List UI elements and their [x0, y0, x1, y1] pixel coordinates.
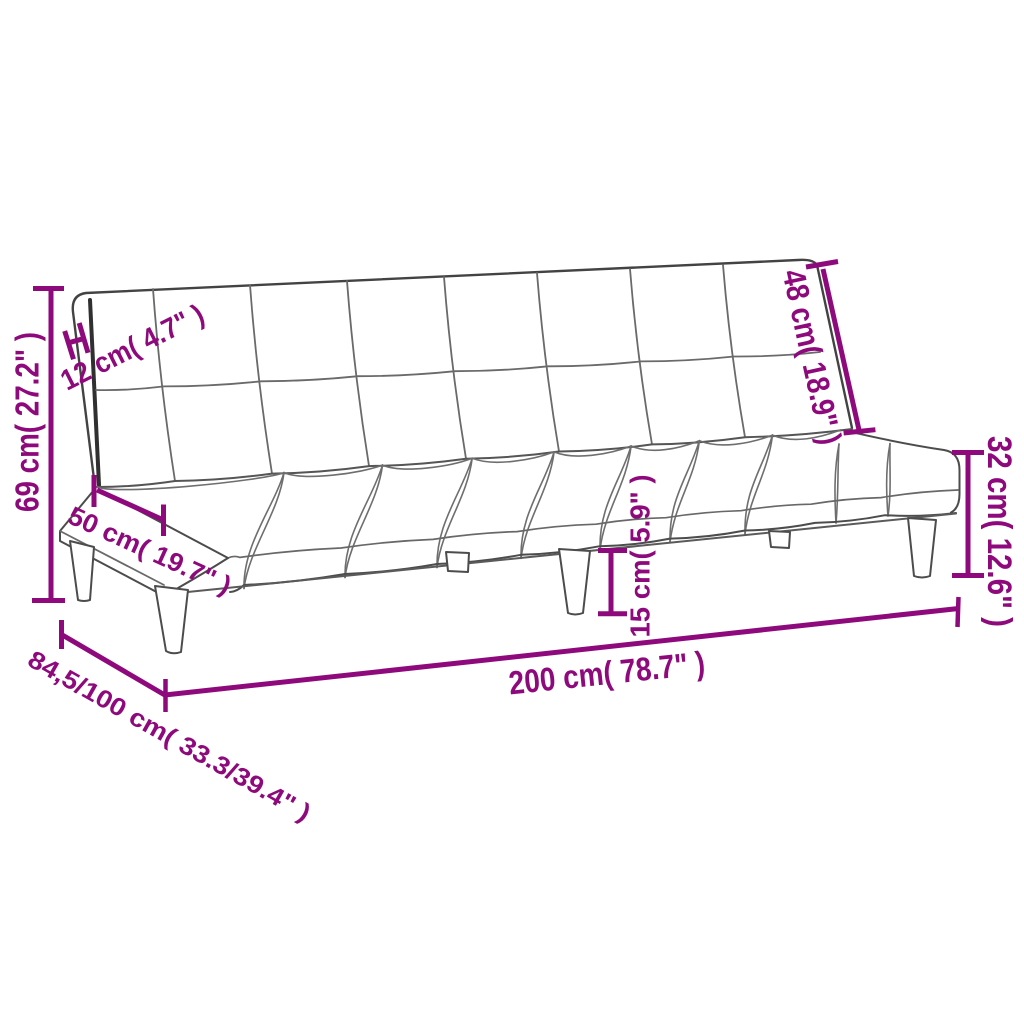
svg-text:32 cm( 12.6" ): 32 cm( 12.6" )	[980, 436, 1018, 627]
svg-text:69 cm( 27.2" ): 69 cm( 27.2" )	[9, 332, 46, 512]
svg-text:15 cm( 5.9" ): 15 cm( 5.9" )	[625, 475, 656, 638]
